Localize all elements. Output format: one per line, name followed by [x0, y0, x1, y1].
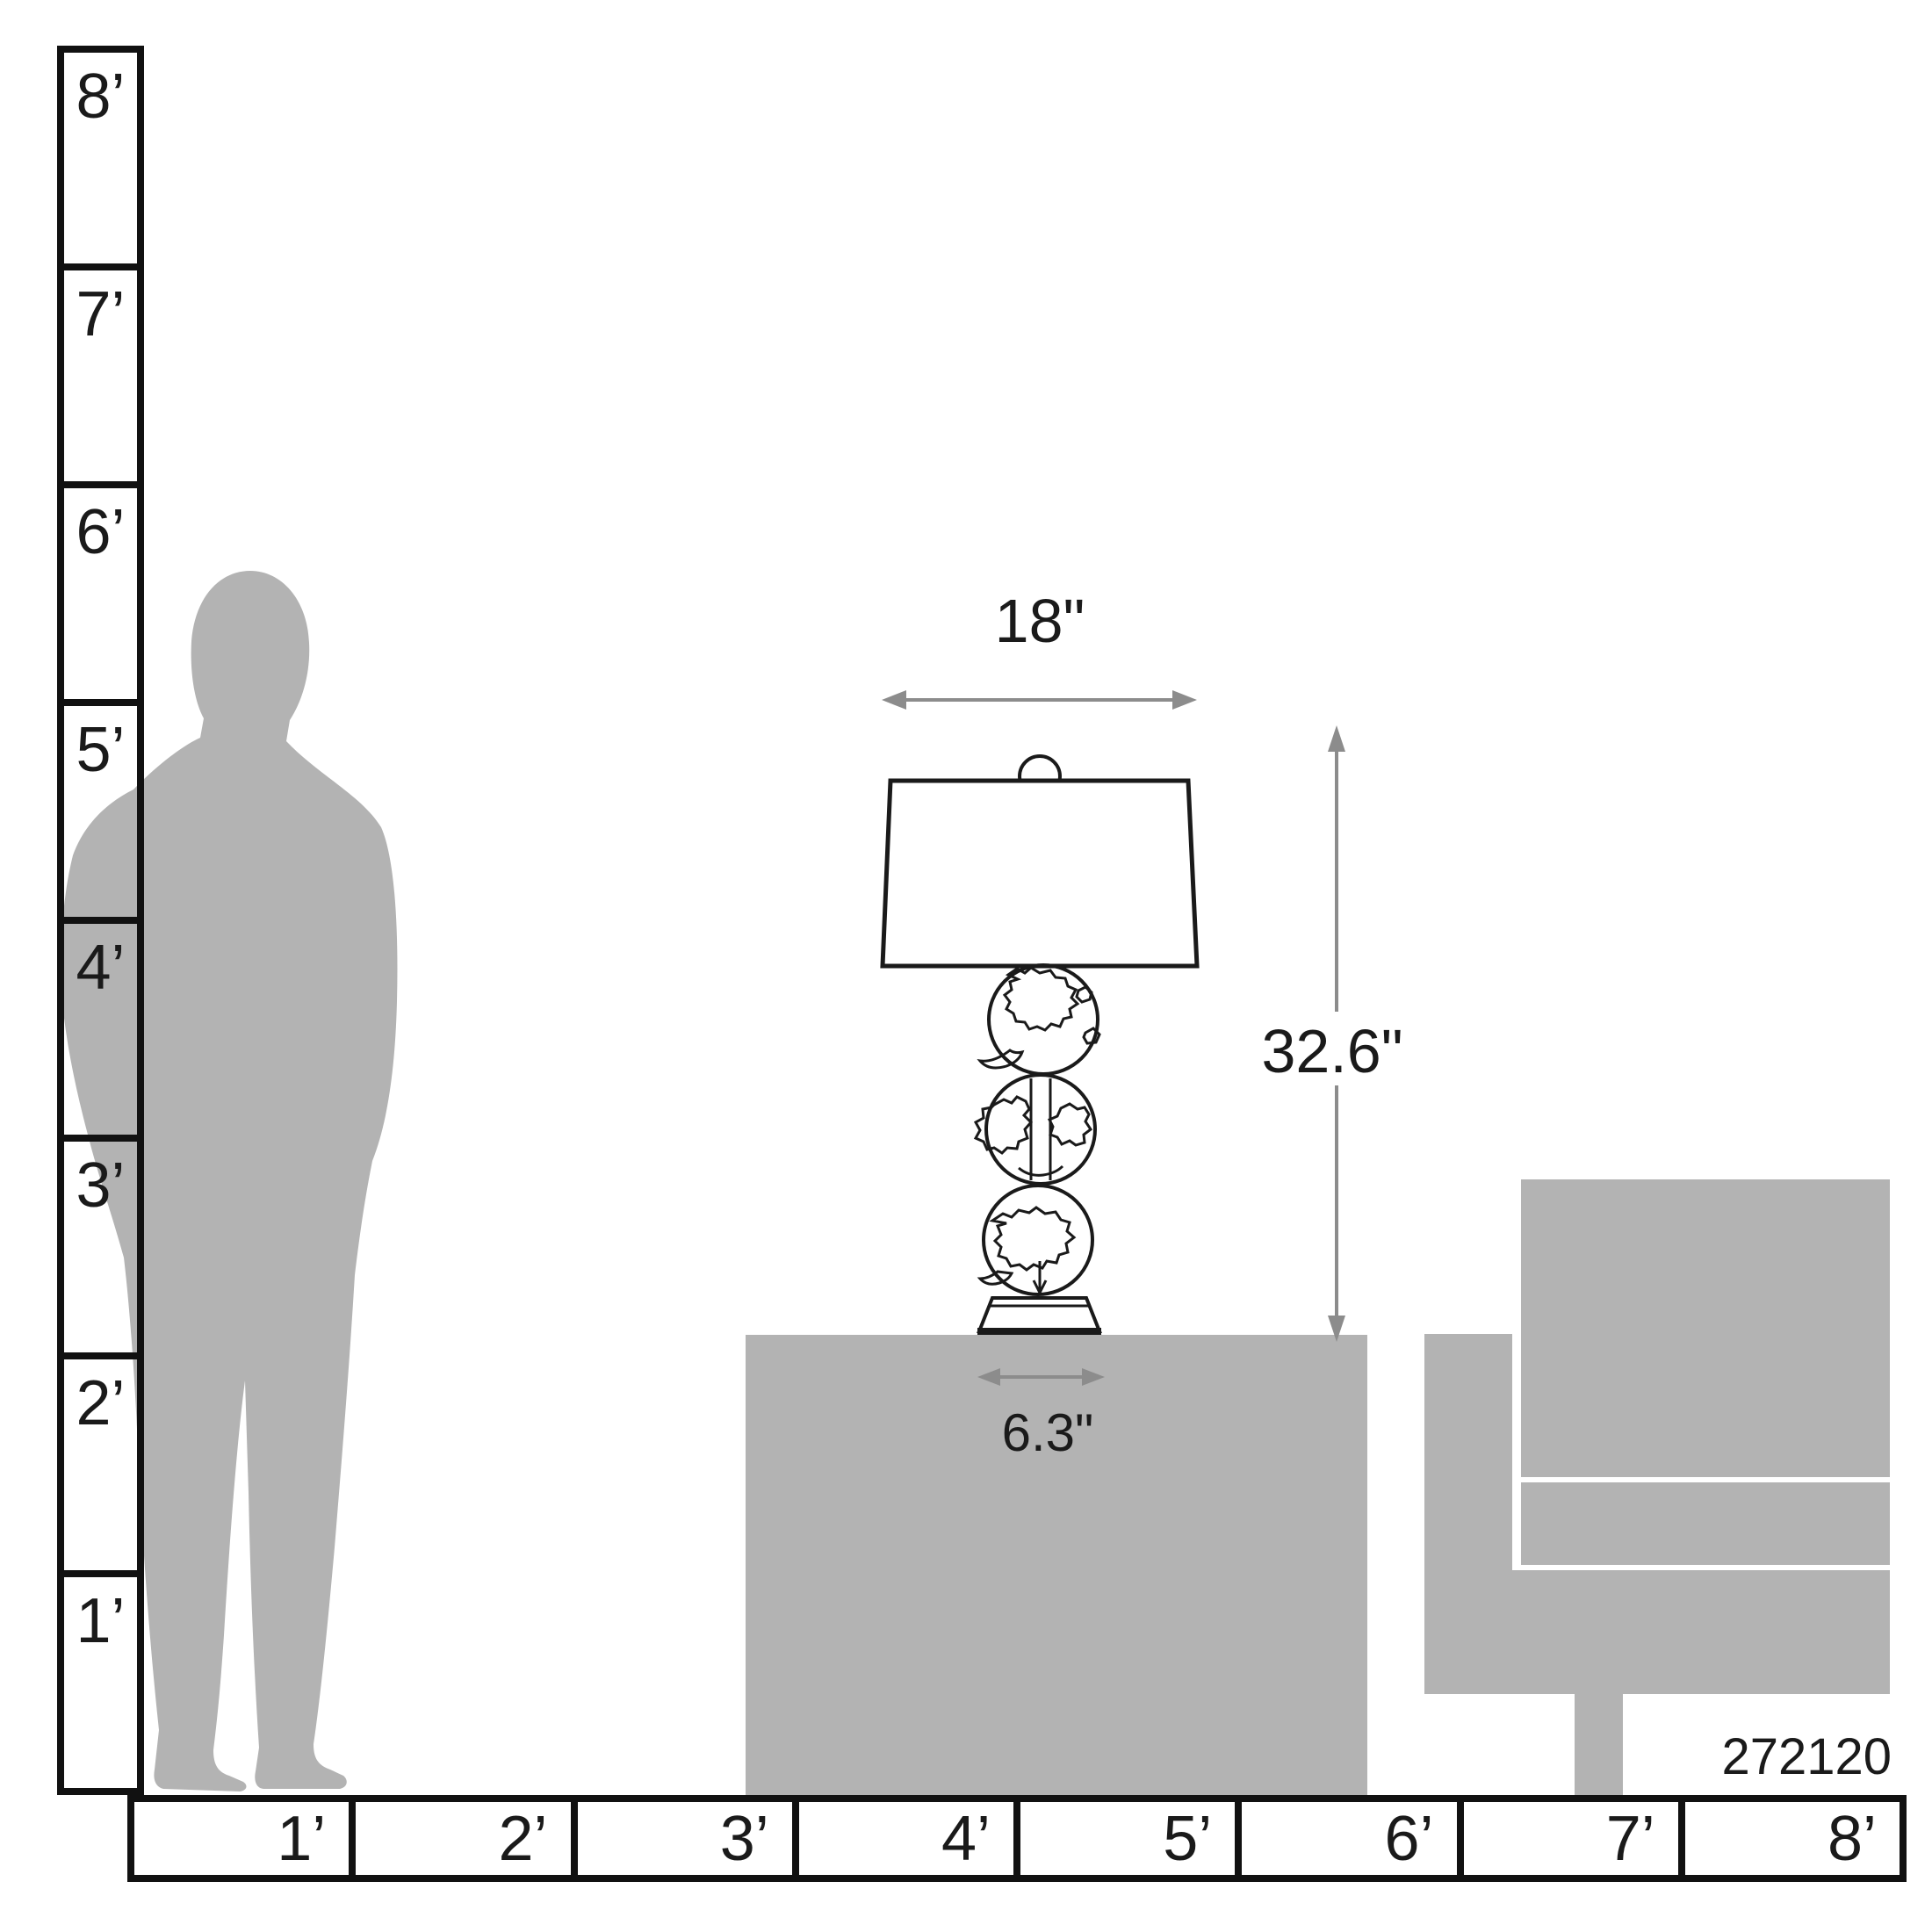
lamp-center-rod: [1031, 1078, 1050, 1180]
armchair-armrest: [1424, 1334, 1512, 1570]
lamp-height-label: 32.6": [1261, 1020, 1402, 1082]
armchair-base: [1424, 1570, 1890, 1694]
vruler-cell-7ft: 7’: [64, 270, 137, 488]
hruler-cell-5ft: 5’: [1020, 1802, 1242, 1875]
hruler-cell-6ft: 6’: [1242, 1802, 1463, 1875]
hruler-cell-2ft: 2’: [356, 1802, 577, 1875]
shade-width-label: 18": [995, 590, 1085, 652]
globe-bottom: [980, 1186, 1092, 1294]
vruler-cell-5ft: 5’: [64, 706, 137, 924]
globe-middle: [976, 1075, 1095, 1184]
scene-graphics: [0, 0, 1932, 1932]
vruler-cell-4ft: 4’: [64, 924, 137, 1142]
base-width-label: 6.3": [1002, 1407, 1094, 1460]
lamp-base: [977, 1298, 1101, 1331]
table-lamp: [883, 756, 1197, 1331]
vruler-cell-2ft: 2’: [64, 1359, 137, 1577]
hruler-cell-3ft: 3’: [578, 1802, 799, 1875]
dimension-diagram: 8’ 7’ 6’ 5’ 4’ 3’ 2’ 1’ 1’ 2’ 3’ 4’ 5’ 6…: [0, 0, 1932, 1932]
vruler-cell-1ft: 1’: [64, 1577, 137, 1788]
armchair: [1424, 1179, 1890, 1797]
vruler-cell-3ft: 3’: [64, 1142, 137, 1359]
hruler-cell-7ft: 7’: [1464, 1802, 1685, 1875]
shade-width-arrow: [882, 690, 1197, 710]
hruler-cell-8ft: 8’: [1685, 1802, 1900, 1875]
lamp-shade: [883, 781, 1197, 966]
armchair-leg: [1575, 1694, 1623, 1797]
hruler-cell-1ft: 1’: [134, 1802, 356, 1875]
vruler-cell-8ft: 8’: [64, 53, 137, 270]
armchair-back: [1521, 1179, 1890, 1477]
globe-top: [980, 965, 1099, 1074]
vertical-scale-ruler: 8’ 7’ 6’ 5’ 4’ 3’ 2’ 1’: [57, 46, 144, 1795]
vruler-cell-6ft: 6’: [64, 488, 137, 706]
product-code: 272120: [1721, 1732, 1892, 1783]
horizontal-scale-ruler: 1’ 2’ 3’ 4’ 5’ 6’ 7’ 8’: [127, 1795, 1907, 1882]
hruler-cell-4ft: 4’: [799, 1802, 1020, 1875]
armchair-seat: [1521, 1482, 1890, 1565]
